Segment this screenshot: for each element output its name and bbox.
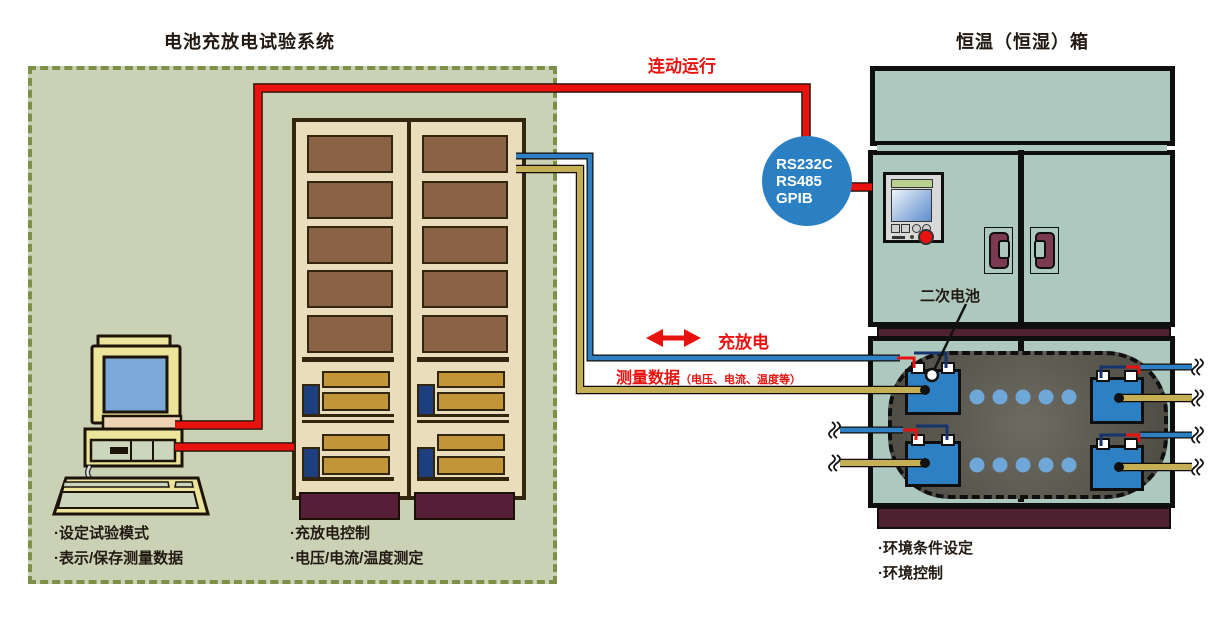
charge-discharge-rack-1 xyxy=(292,118,412,500)
interface-circle: RS232C RS485 GPIB xyxy=(762,136,852,226)
rack-panel xyxy=(422,315,508,353)
rack-panel xyxy=(307,226,393,264)
door-handle-left[interactable] xyxy=(984,227,1013,274)
interface-rs485: RS485 xyxy=(776,173,852,190)
battery-terminal xyxy=(1124,370,1138,382)
rack-panel xyxy=(422,226,508,264)
rack-module xyxy=(417,447,435,479)
rack-module xyxy=(302,384,320,416)
battery-top-left xyxy=(905,369,961,415)
pc-note-1: ·设定试验模式 xyxy=(54,521,183,546)
rack-divider xyxy=(302,357,394,362)
rack-divider xyxy=(302,414,394,417)
battery-terminal xyxy=(941,434,955,446)
rack-slot xyxy=(437,371,505,388)
rack-slot xyxy=(437,434,505,451)
panel-status-strip xyxy=(891,179,933,188)
battery-terminal xyxy=(941,362,955,374)
battery-terminal xyxy=(1124,438,1138,450)
rack-panel xyxy=(307,315,393,353)
pc-note-2: ·表示/保存测量数据 xyxy=(54,546,183,571)
rack-divider xyxy=(417,420,509,423)
rack-divider xyxy=(417,414,509,417)
measurement-label: 测量数据 （电压、电流、温度等） xyxy=(616,364,801,388)
chamber-note-1: ·环境条件设定 xyxy=(878,536,973,561)
chamber-notes: ·环境条件设定 ·环境控制 xyxy=(878,536,973,586)
rack-slot xyxy=(322,456,390,475)
secondary-battery-label: 二次电池 xyxy=(920,285,980,306)
panel-slider[interactable] xyxy=(892,236,905,239)
charge-discharge-label: 充放电 xyxy=(718,328,769,353)
battery-terminal xyxy=(1096,370,1110,382)
rack-base-1 xyxy=(299,492,400,520)
rack-slot xyxy=(437,456,505,475)
rack-panel xyxy=(307,181,393,219)
chamber-control-panel xyxy=(883,172,944,243)
rack-panel xyxy=(307,270,393,308)
chamber-title: 恒温（恒湿）箱 xyxy=(956,28,1089,54)
battery-bottom-left xyxy=(905,441,961,487)
rack-divider xyxy=(417,357,509,362)
pc-notes: ·设定试验模式 ·表示/保存测量数据 xyxy=(54,521,183,571)
interface-gpib: GPIB xyxy=(776,190,852,207)
drive-bay-strip xyxy=(91,440,175,461)
door-handle-right[interactable] xyxy=(1030,227,1059,274)
measurement-label-detail: （电压、电流、温度等） xyxy=(680,371,801,387)
monitor-screen xyxy=(104,357,167,412)
panel-button-2[interactable] xyxy=(901,224,910,233)
chamber-note-2: ·环境控制 xyxy=(878,561,973,586)
rack-divider xyxy=(302,420,394,423)
diagram-canvas: 电池充放电试验系统 恒温（恒湿）箱 xyxy=(0,0,1213,622)
rack-module xyxy=(302,447,320,479)
rack-slot xyxy=(322,371,390,388)
panel-led xyxy=(910,235,914,239)
chamber-base xyxy=(877,507,1171,529)
rack-panel xyxy=(422,181,508,219)
charge-discharge-rack-2 xyxy=(407,118,526,500)
rack-slot xyxy=(322,392,390,411)
rack-note-1: ·充放电控制 xyxy=(290,521,423,546)
battery-terminal xyxy=(1096,438,1110,450)
battery-bottom-right xyxy=(1090,445,1144,491)
interface-rs232c: RS232C xyxy=(776,156,852,173)
measurement-label-main: 测量数据 xyxy=(616,364,680,388)
rack-divider xyxy=(417,477,509,481)
rack-panel xyxy=(307,135,393,173)
keyboard-keys xyxy=(58,492,198,508)
battery-terminal xyxy=(911,434,925,446)
linked-run-label: 连动运行 xyxy=(648,52,716,77)
rack-panel xyxy=(422,270,508,308)
rack-note-2: ·电压/电流/温度测定 xyxy=(290,546,423,571)
rack-module xyxy=(417,384,435,416)
rack-slot xyxy=(437,392,505,411)
rack-panel xyxy=(422,135,508,173)
rack-divider xyxy=(302,477,394,481)
panel-button-1[interactable] xyxy=(891,224,900,233)
battery-top-right xyxy=(1090,377,1144,424)
floppy-slot xyxy=(110,447,128,454)
rack-slot xyxy=(322,434,390,451)
panel-power-button[interactable] xyxy=(918,229,934,245)
charge-discharge-arrow xyxy=(646,329,701,347)
panel-screen xyxy=(891,189,932,222)
rack-base-2 xyxy=(414,492,515,520)
system-title: 电池充放电试验系统 xyxy=(164,28,335,54)
rack-notes: ·充放电控制 ·电压/电流/温度测定 xyxy=(290,521,423,571)
computer-illustration xyxy=(46,330,210,526)
battery-terminal xyxy=(911,362,925,374)
door-divider xyxy=(1018,150,1024,327)
chamber-top-unit xyxy=(870,66,1175,146)
